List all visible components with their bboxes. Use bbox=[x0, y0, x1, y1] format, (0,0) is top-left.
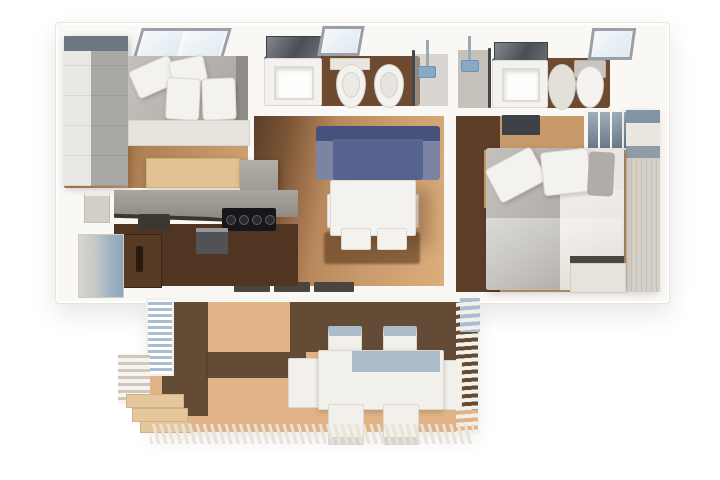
pergola-fringe-bottom bbox=[150, 424, 474, 444]
louver-screen bbox=[146, 298, 174, 376]
pergola-fringe-right bbox=[456, 297, 480, 435]
terrace bbox=[0, 0, 720, 480]
outdoor-chair bbox=[288, 358, 320, 408]
floorplan-render-canvas bbox=[0, 0, 720, 480]
terrace-step bbox=[126, 394, 184, 408]
outdoor-table-shaded-band bbox=[352, 351, 440, 372]
terrace-step bbox=[132, 408, 188, 422]
